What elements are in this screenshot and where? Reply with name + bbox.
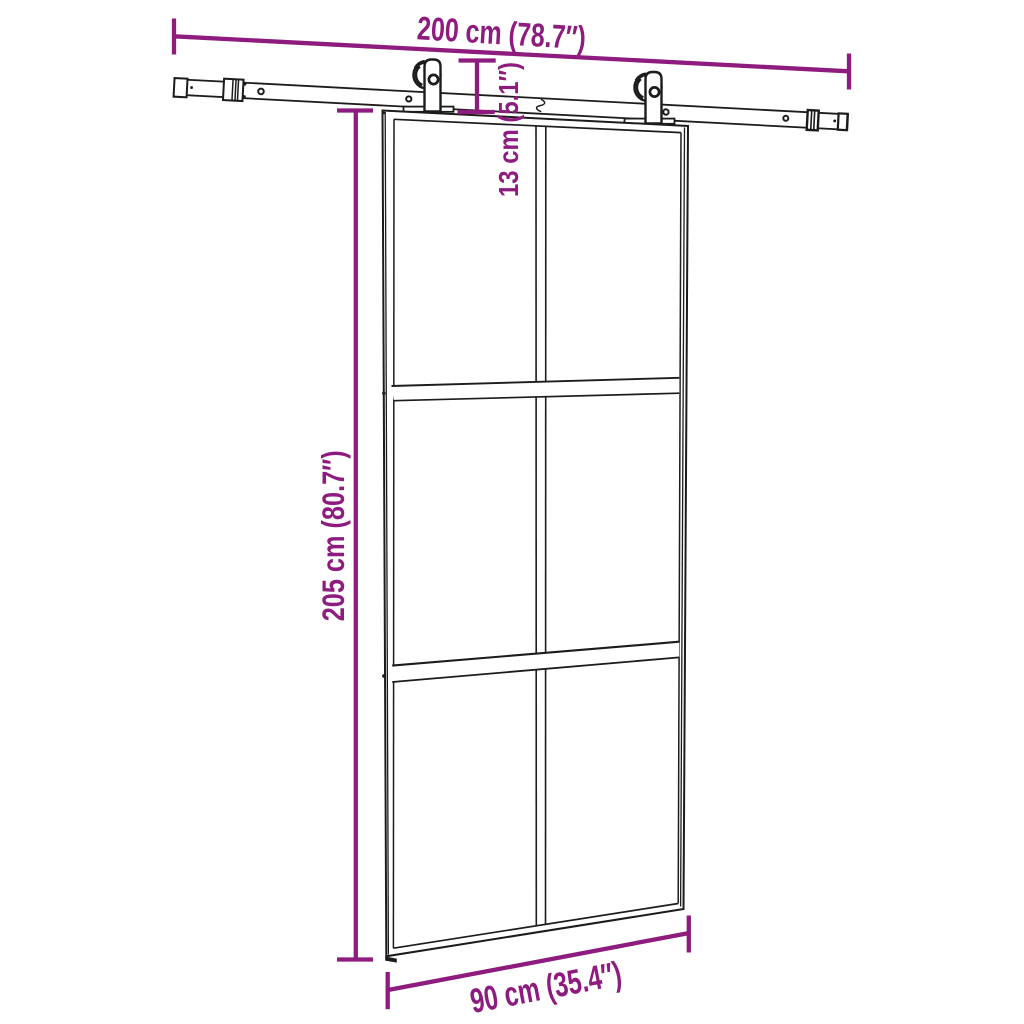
- svg-text:13 cm (5.1″): 13 cm (5.1″): [493, 62, 524, 197]
- svg-text:205 cm (80.7″): 205 cm (80.7″): [315, 450, 351, 621]
